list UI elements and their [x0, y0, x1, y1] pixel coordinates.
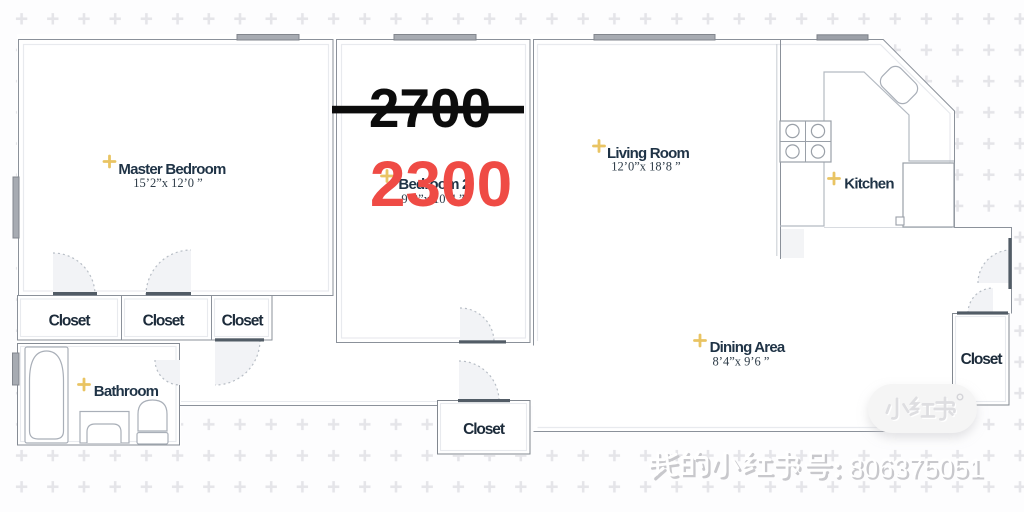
svg-text:806375051: 806375051 — [848, 453, 983, 483]
svg-text:Closet: Closet — [49, 313, 91, 330]
svg-text:Bathroom: Bathroom — [94, 383, 159, 400]
svg-text:12’0”x 18’8 ”: 12’0”x 18’8 ” — [611, 160, 680, 174]
svg-text:Kitchen: Kitchen — [844, 176, 894, 193]
svg-text:Closet: Closet — [222, 313, 264, 330]
svg-text:Closet: Closet — [143, 313, 185, 330]
svg-text:Dining Area: Dining Area — [710, 339, 786, 356]
svg-text:15’2”x 12’0 ”: 15’2”x 12’0 ” — [133, 176, 202, 190]
svg-text:2300: 2300 — [370, 148, 512, 220]
svg-text:Closet: Closet — [463, 421, 505, 438]
svg-text:8’4”x 9’6 ”: 8’4”x 9’6 ” — [713, 355, 770, 369]
svg-text:Closet: Closet — [961, 351, 1003, 368]
